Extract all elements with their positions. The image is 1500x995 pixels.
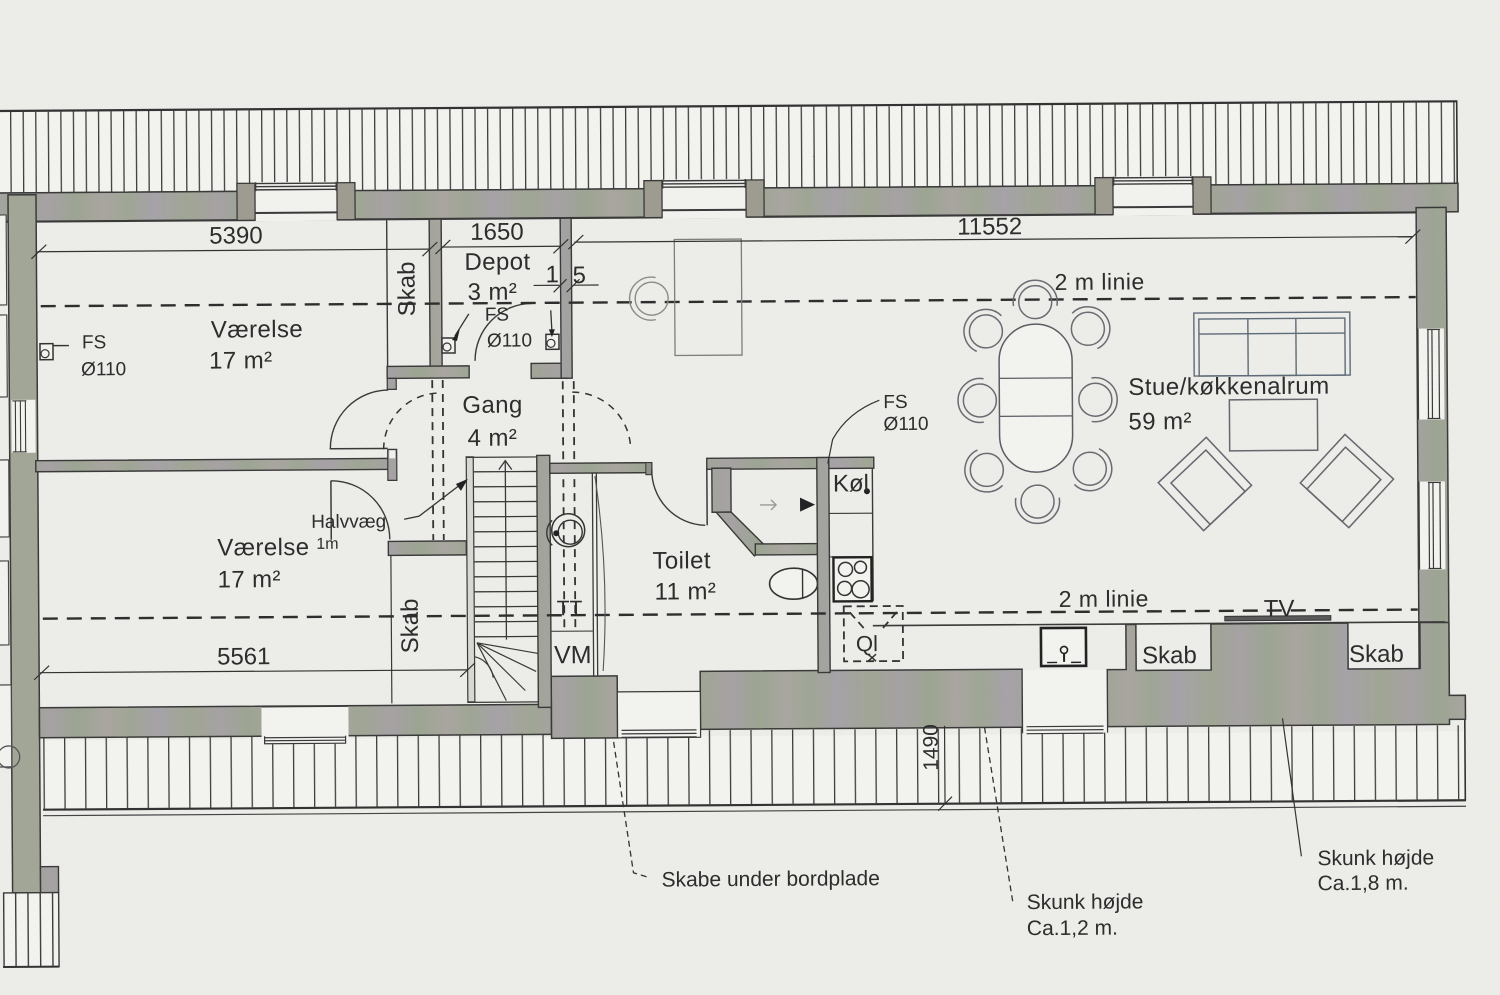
svg-text:Ca.1,8 m.: Ca.1,8 m.	[1318, 872, 1409, 896]
svg-text:Skabe under bordplade: Skabe under bordplade	[661, 867, 879, 891]
svg-text:Ca.1,2 m.: Ca.1,2 m.	[1027, 917, 1118, 941]
svg-text:Skunk højde: Skunk højde	[1027, 890, 1144, 914]
svg-text:11552: 11552	[957, 213, 1022, 240]
svg-text:VM: VM	[554, 641, 592, 669]
svg-text:Gang: Gang	[462, 392, 522, 419]
svg-text:Skab: Skab	[397, 598, 424, 653]
svg-text:Skunk højde: Skunk højde	[1317, 846, 1434, 870]
svg-text:Køl: Køl	[833, 470, 869, 497]
svg-text:11 m²: 11 m²	[655, 578, 717, 605]
svg-text:FS: FS	[82, 332, 106, 353]
svg-text:Skab: Skab	[1142, 642, 1197, 669]
svg-text:1m: 1m	[316, 536, 338, 553]
svg-text:17 m²: 17 m²	[209, 347, 273, 374]
svg-text:Toilet: Toilet	[652, 547, 711, 574]
svg-text:1490: 1490	[920, 724, 943, 771]
svg-text:5: 5	[572, 262, 586, 289]
svg-text:Skab: Skab	[393, 261, 420, 316]
svg-text:FS: FS	[883, 392, 907, 413]
svg-text:Ø110: Ø110	[487, 330, 532, 351]
svg-text:TT: TT	[557, 597, 583, 620]
svg-text:2 m linie: 2 m linie	[1054, 268, 1144, 295]
svg-text:Ø110: Ø110	[883, 414, 928, 435]
svg-text:Halvvæg: Halvvæg	[311, 511, 386, 532]
svg-text:17 m²: 17 m²	[217, 566, 281, 593]
svg-text:4 m²: 4 m²	[468, 425, 518, 452]
svg-text:Ø110: Ø110	[81, 359, 126, 380]
svg-text:Værelse: Værelse	[211, 316, 303, 344]
svg-text:5390: 5390	[209, 222, 263, 249]
svg-text:1: 1	[545, 261, 559, 288]
svg-text:Stue/køkkenalrum: Stue/køkkenalrum	[1128, 373, 1330, 401]
svg-text:Skab: Skab	[1349, 641, 1404, 668]
svg-text:59 m²: 59 m²	[1128, 408, 1192, 435]
svg-text:TV: TV	[1264, 595, 1295, 622]
svg-text:5561: 5561	[217, 643, 271, 670]
svg-text:2 m linie: 2 m linie	[1059, 585, 1149, 612]
svg-text:Ql: Ql	[856, 631, 878, 656]
svg-text:Depot: Depot	[464, 248, 530, 275]
svg-text:1650: 1650	[470, 218, 524, 245]
svg-text:3 m²: 3 m²	[468, 279, 518, 306]
svg-text:FS: FS	[485, 305, 509, 326]
svg-text:Værelse: Værelse	[217, 534, 309, 562]
